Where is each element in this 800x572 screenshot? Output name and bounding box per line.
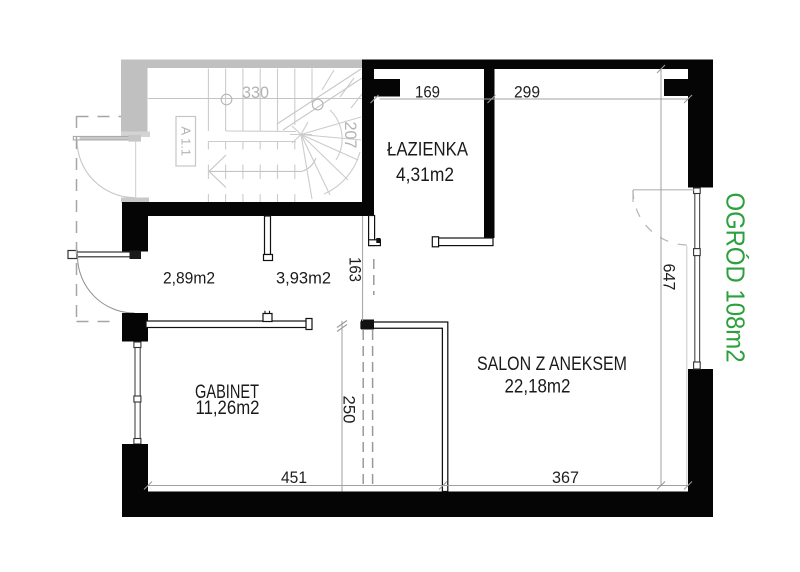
svg-text:330: 330 [242,84,269,102]
svg-text:OGRÓD 108m2: OGRÓD 108m2 [721,193,751,363]
svg-text:207: 207 [341,122,359,149]
svg-text:169: 169 [415,84,440,102]
svg-text:22,18m2: 22,18m2 [505,377,571,398]
svg-text:3,93m2: 3,93m2 [276,269,331,288]
svg-text:ŁAZIENKA: ŁAZIENKA [387,140,468,161]
svg-text:451: 451 [281,469,307,487]
svg-text:11,26m2: 11,26m2 [196,398,260,419]
svg-text:647: 647 [660,264,678,291]
svg-text:2,89m2: 2,89m2 [163,269,215,288]
svg-text:250: 250 [340,396,358,424]
svg-text:A 1.1: A 1.1 [178,126,193,156]
svg-text:299: 299 [514,84,540,102]
svg-text:367: 367 [552,469,579,487]
svg-text:SALON Z ANEKSEM: SALON Z ANEKSEM [477,354,627,375]
svg-text:4,31m2: 4,31m2 [396,165,454,186]
svg-text:163: 163 [346,257,364,282]
